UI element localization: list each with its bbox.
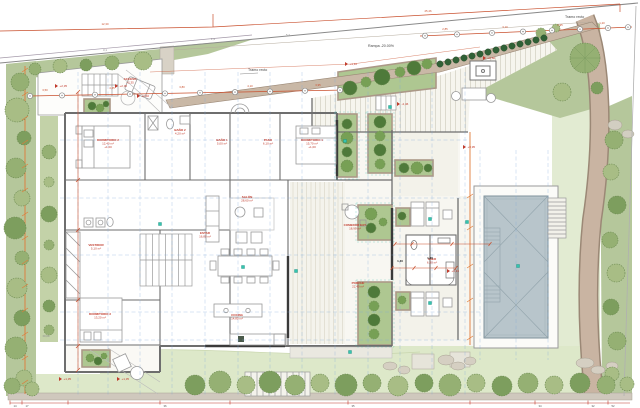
tree bbox=[608, 196, 626, 214]
tree bbox=[44, 240, 54, 250]
room-label-line: 22,40 m² bbox=[352, 284, 364, 288]
room-label-line: 6,10 m² bbox=[263, 141, 273, 145]
tramo-recto-top-label: Tramo recto bbox=[565, 15, 584, 19]
hedge-bush bbox=[509, 43, 515, 49]
hedge-bush bbox=[445, 59, 451, 65]
utility-dot bbox=[295, 270, 298, 273]
dim-text: 1,20 bbox=[599, 21, 605, 25]
level-marker-text: +2,35 bbox=[60, 84, 68, 88]
dim-text: 3,80 bbox=[179, 85, 185, 89]
hedge-bush bbox=[453, 57, 459, 63]
tree bbox=[285, 375, 305, 395]
tree bbox=[42, 145, 56, 159]
hedge-bush bbox=[533, 37, 539, 43]
dim-text: 3,10 bbox=[502, 25, 508, 29]
tree bbox=[259, 371, 281, 393]
hedge-bush bbox=[437, 61, 443, 67]
tree bbox=[603, 299, 619, 315]
axis-bubble-dot bbox=[304, 90, 305, 91]
tree bbox=[5, 98, 29, 122]
tree bbox=[25, 382, 39, 396]
paver-1 bbox=[412, 354, 434, 369]
stair-main bbox=[140, 234, 192, 286]
tree bbox=[86, 354, 94, 362]
utility-dot bbox=[517, 265, 520, 268]
tree bbox=[374, 116, 386, 128]
tree bbox=[545, 376, 563, 394]
tree bbox=[185, 375, 205, 395]
level-marker-text: +0,60 bbox=[488, 56, 496, 60]
axis-bubble-dot bbox=[29, 95, 30, 96]
tree bbox=[603, 164, 619, 180]
tree bbox=[335, 374, 357, 396]
level-marker-text: +1,35 bbox=[64, 377, 72, 381]
level-marker-text: +1,10 bbox=[350, 62, 358, 66]
tree bbox=[103, 101, 109, 107]
room-label: PASO6,10 m² bbox=[263, 138, 273, 145]
tree bbox=[5, 337, 27, 359]
tree bbox=[411, 162, 423, 174]
tree bbox=[375, 131, 385, 141]
tree bbox=[14, 190, 30, 206]
level-marker-text: +0,95 bbox=[468, 145, 476, 149]
dim-text-gray: 1,4 bbox=[211, 37, 215, 41]
tree bbox=[369, 329, 379, 339]
tree bbox=[96, 104, 104, 112]
tree bbox=[424, 164, 432, 172]
tree bbox=[105, 56, 119, 70]
patio-southwest bbox=[65, 345, 160, 372]
tree bbox=[11, 73, 29, 91]
tree bbox=[4, 378, 20, 394]
tree bbox=[608, 332, 626, 350]
axis-bubble-dot bbox=[234, 91, 235, 92]
scale-number: 32 bbox=[591, 404, 595, 408]
room-label-line: 5,00 m² bbox=[217, 141, 227, 145]
plan-canvas: DORMITORIO 212,40 m²+1,00BAÑO 24,20 m²BA… bbox=[0, 0, 640, 408]
tree bbox=[553, 83, 571, 101]
axis-bubble-dot bbox=[627, 26, 628, 27]
tree bbox=[374, 144, 386, 156]
tree bbox=[492, 376, 512, 396]
room-label-line: 5,10 m² bbox=[91, 246, 101, 250]
stair-terrace-small bbox=[376, 96, 396, 110]
tree bbox=[88, 102, 96, 110]
room-label-line: 16,80 m² bbox=[199, 234, 211, 238]
utility-dot bbox=[344, 140, 347, 143]
bbq-structure bbox=[470, 61, 496, 80]
tree bbox=[209, 371, 231, 393]
tree bbox=[407, 61, 421, 75]
tree bbox=[415, 374, 433, 392]
bed-dormitorio-2 bbox=[76, 126, 130, 168]
room-label-line: 6,30 m² bbox=[427, 260, 437, 264]
room-label: PORCHE22,40 m² bbox=[352, 281, 365, 288]
dim-text-bold: 1,40 bbox=[397, 259, 403, 263]
room-label-line: +2,35 bbox=[126, 80, 134, 84]
tree bbox=[395, 67, 405, 77]
utility-dot bbox=[242, 266, 245, 269]
level-marker-text: +2,35 bbox=[120, 84, 128, 88]
tree bbox=[44, 177, 54, 187]
room-label: SALÓN28,60 m² bbox=[241, 194, 253, 202]
stair-note-label: ±0,00 bbox=[43, 334, 50, 338]
axis-bubble-dot bbox=[607, 27, 608, 28]
tree bbox=[341, 132, 353, 144]
dim-text-bold: 1,20 bbox=[427, 256, 433, 260]
tree bbox=[467, 374, 485, 392]
site-plan-drawing: DORMITORIO 212,40 m²+1,00BAÑO 24,20 m²BA… bbox=[0, 0, 640, 408]
tree bbox=[399, 163, 409, 173]
axis-bubble-dot bbox=[94, 94, 95, 95]
hedge-bush bbox=[469, 53, 475, 59]
tree bbox=[43, 300, 55, 312]
dim-text: 4,10 bbox=[247, 84, 253, 88]
scale-number: 17 bbox=[25, 404, 29, 408]
hedge-bush bbox=[461, 55, 467, 61]
stair-court bbox=[82, 74, 118, 96]
pool-side-stair bbox=[548, 198, 566, 238]
tree bbox=[41, 267, 57, 283]
tree bbox=[311, 374, 329, 392]
tree bbox=[398, 296, 406, 304]
axis-bubble-dot bbox=[129, 93, 130, 94]
level-marker-text: +2,40 bbox=[142, 94, 150, 98]
tree bbox=[94, 357, 102, 365]
dim-text: 25,46 bbox=[425, 9, 432, 13]
dim-text: 3,50 bbox=[42, 88, 48, 92]
tree bbox=[368, 286, 380, 298]
tree bbox=[605, 131, 623, 149]
tree bbox=[343, 81, 357, 95]
tree bbox=[361, 77, 371, 87]
tree bbox=[101, 353, 107, 359]
axis-bubble-dot bbox=[61, 95, 62, 96]
tree bbox=[342, 147, 352, 157]
tree bbox=[422, 59, 432, 69]
room-label: BAÑO 15,00 m² bbox=[216, 137, 228, 145]
level-marker-text: +1,35 bbox=[122, 377, 130, 381]
sidewalk-bottom bbox=[8, 393, 632, 400]
tree bbox=[14, 310, 30, 326]
axis-bubble-dot bbox=[491, 32, 492, 33]
room-label-line: 14,80 m² bbox=[231, 316, 243, 320]
tree bbox=[379, 218, 387, 226]
tree bbox=[597, 376, 615, 394]
tree bbox=[15, 251, 29, 265]
axis-bubble-dot bbox=[522, 31, 523, 32]
scale-number: 52 bbox=[611, 404, 615, 408]
tree bbox=[80, 59, 92, 71]
tree bbox=[53, 59, 67, 73]
scale-number: 14 bbox=[13, 404, 17, 408]
utility-dot bbox=[159, 223, 162, 226]
level-marker-text: +0,15 bbox=[452, 269, 460, 273]
tree bbox=[620, 377, 634, 391]
terrace-slab bbox=[290, 347, 392, 358]
level-marker-text: -2,46 bbox=[402, 102, 409, 106]
tree bbox=[607, 264, 625, 282]
dim-text: 2,85 bbox=[442, 27, 448, 31]
tree bbox=[602, 232, 618, 248]
axis-bubble-dot bbox=[339, 89, 340, 90]
hedge-bush bbox=[517, 41, 523, 47]
scale-number: 34 bbox=[538, 404, 542, 408]
utility-dot bbox=[389, 106, 392, 109]
tree bbox=[363, 374, 381, 392]
tree bbox=[398, 212, 406, 220]
tree bbox=[365, 208, 377, 220]
tree bbox=[134, 52, 152, 70]
axis-bubble-dot bbox=[164, 93, 165, 94]
hedge-bush bbox=[525, 39, 531, 45]
room-label-line: 4,20 m² bbox=[175, 131, 185, 135]
tree bbox=[366, 223, 376, 233]
tree bbox=[4, 217, 26, 239]
tree bbox=[369, 301, 379, 311]
utility-dot bbox=[429, 302, 432, 305]
ramp-label: Rampa -20.00% bbox=[368, 44, 395, 48]
hedge-bush bbox=[493, 47, 499, 53]
scale-number: 35 bbox=[351, 404, 355, 408]
dim-text: 2,95 bbox=[557, 23, 563, 27]
tree bbox=[368, 314, 380, 326]
tree bbox=[341, 160, 353, 172]
tree bbox=[591, 82, 603, 94]
hedge-bush bbox=[477, 51, 483, 57]
axis-bubble-dot bbox=[199, 92, 200, 93]
hedge-bush bbox=[501, 45, 507, 51]
tree bbox=[29, 63, 41, 75]
axis-bubble-dot bbox=[579, 29, 580, 30]
tree bbox=[7, 278, 27, 298]
tree bbox=[518, 373, 538, 393]
tree bbox=[374, 69, 390, 85]
dim-text-gray: 5,2 bbox=[286, 33, 290, 37]
room-label-line: 13,20 m² bbox=[94, 315, 106, 319]
room-label-line: +1,00 bbox=[308, 145, 316, 149]
room-label: BAÑO 24,20 m² bbox=[174, 127, 186, 135]
tree bbox=[237, 376, 255, 394]
dim-text: 3,95 bbox=[315, 83, 321, 87]
tree bbox=[388, 376, 408, 396]
dim-text-gray: 3,1 bbox=[103, 48, 107, 52]
room-label: COCINA14,80 m² bbox=[231, 313, 244, 320]
axis-bubble-dot bbox=[456, 34, 457, 35]
bed-dormitorio-3 bbox=[80, 298, 122, 342]
utility-dot bbox=[349, 351, 352, 354]
utility-dot bbox=[429, 218, 432, 221]
tree bbox=[375, 159, 385, 169]
tramo-recto-mid-label: Tramo recto bbox=[248, 68, 267, 72]
hedge-bush bbox=[485, 49, 491, 55]
tree bbox=[41, 206, 57, 222]
tree bbox=[342, 119, 352, 129]
tree bbox=[6, 158, 26, 178]
room-label: ESTAR16,80 m² bbox=[199, 231, 211, 238]
utility-dot bbox=[466, 221, 469, 224]
tree bbox=[439, 374, 461, 396]
axis-bubble-dot bbox=[269, 91, 270, 92]
dim-text: 4,25 bbox=[109, 86, 115, 90]
hedge-bush bbox=[541, 35, 547, 41]
room-label-line: 18,90 m² bbox=[349, 226, 361, 230]
pool-area bbox=[474, 186, 566, 348]
room-label-line: +1,00 bbox=[104, 145, 112, 149]
tree bbox=[570, 373, 590, 393]
axis-bubble-dot bbox=[424, 35, 425, 36]
scale-number: 36 bbox=[163, 404, 167, 408]
axis-bubble-dot bbox=[551, 30, 552, 31]
room-label-line: 28,60 m² bbox=[241, 198, 253, 202]
dim-text: 12,30 bbox=[102, 22, 109, 26]
